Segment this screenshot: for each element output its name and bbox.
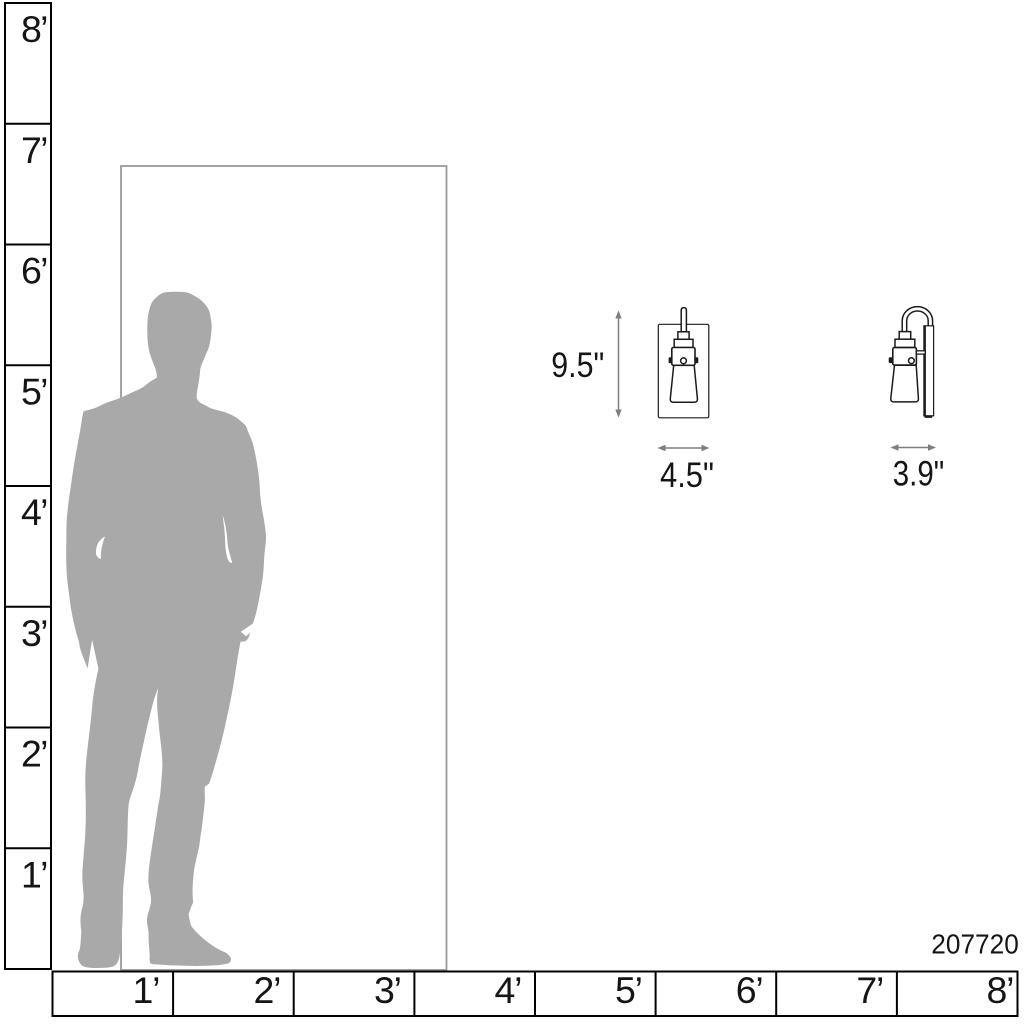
svg-text:9.5": 9.5" [551,346,604,385]
svg-text:2’: 2’ [21,733,49,775]
svg-text:7’: 7’ [856,969,884,1011]
svg-text:8’: 8’ [21,8,49,50]
svg-text:3.9": 3.9" [893,455,945,494]
svg-text:4’: 4’ [495,969,523,1011]
svg-text:8’: 8’ [987,969,1015,1011]
svg-text:5’: 5’ [615,969,643,1011]
svg-text:3’: 3’ [21,612,49,654]
svg-text:207720: 207720 [931,929,1019,960]
svg-text:1’: 1’ [21,853,49,895]
svg-text:7’: 7’ [21,129,49,171]
svg-text:4’: 4’ [21,491,49,533]
svg-text:2’: 2’ [254,969,282,1011]
svg-text:5’: 5’ [21,370,49,412]
svg-text:4.5": 4.5" [660,456,714,495]
svg-text:6’: 6’ [736,969,764,1011]
svg-text:3’: 3’ [374,969,402,1011]
svg-text:6’: 6’ [21,250,49,292]
svg-text:1’: 1’ [133,969,161,1011]
